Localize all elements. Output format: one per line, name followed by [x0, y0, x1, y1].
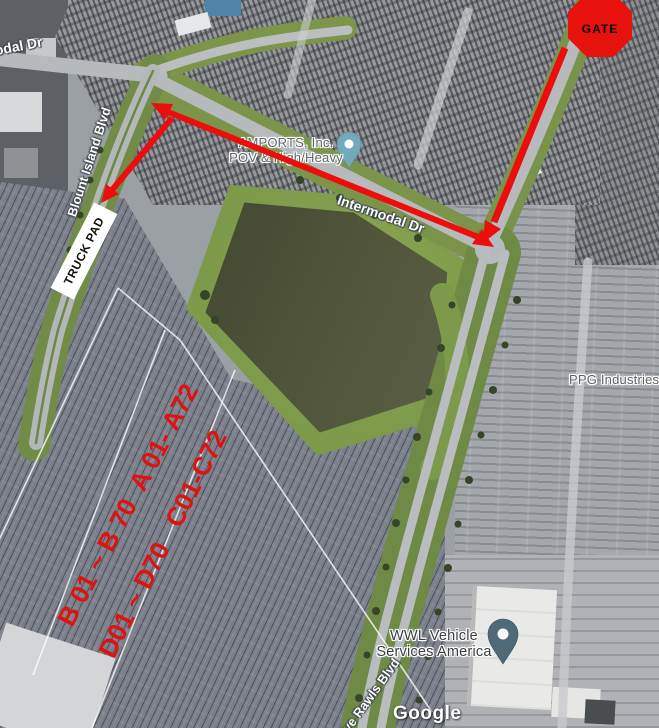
map-canvas[interactable]: Intermodal Dr Blount Island Blvd Intermo…	[0, 0, 659, 728]
red-annotations	[0, 0, 659, 728]
arrowhead-gate-route	[483, 220, 501, 243]
gate-route-arrow-line	[494, 48, 565, 222]
truck-pad-arrow-line	[112, 118, 172, 190]
gate-label: GATE	[582, 22, 618, 36]
intermodal-route-arrow-line	[168, 112, 478, 237]
